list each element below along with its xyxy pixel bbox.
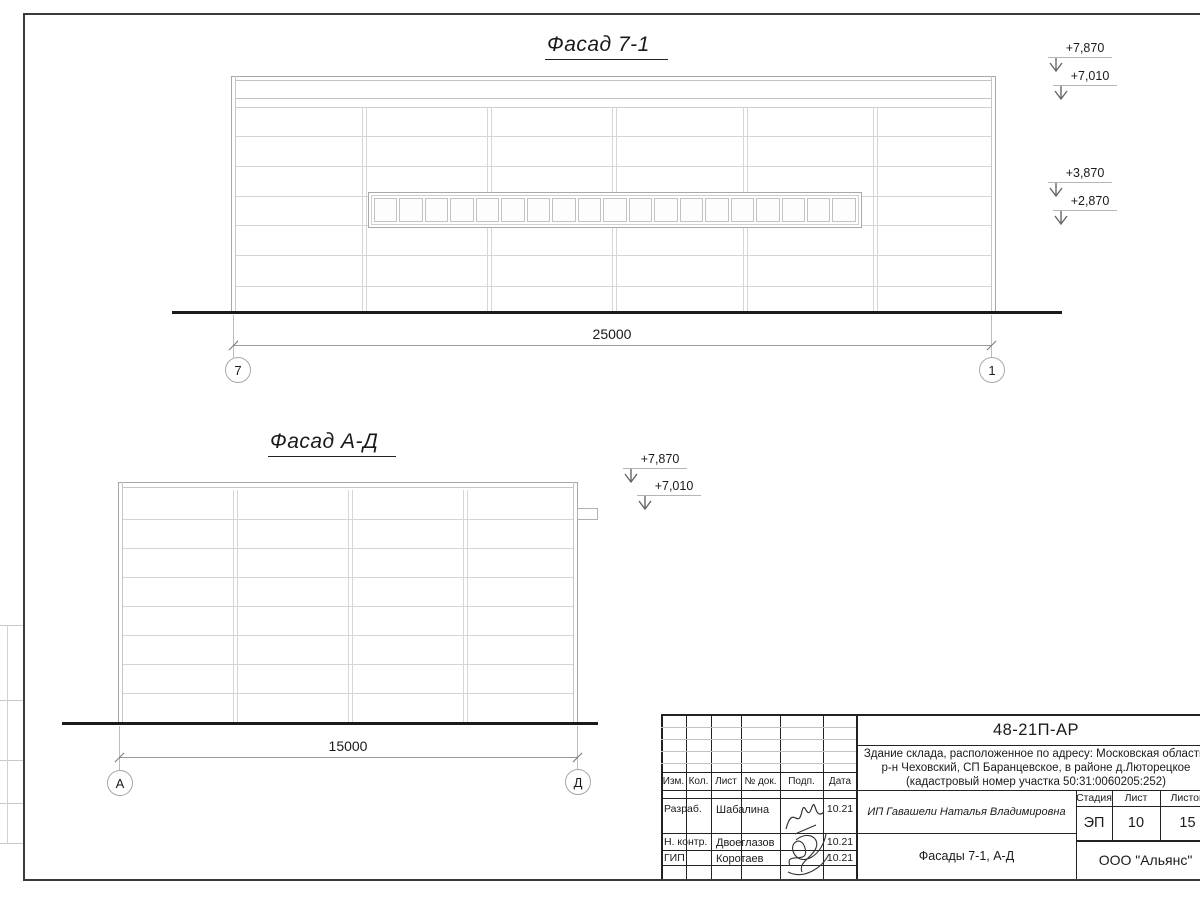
row-role: ГИП — [661, 850, 716, 865]
col-list: Лист — [711, 772, 741, 790]
list-value: 10 — [1112, 806, 1160, 840]
window-pane — [450, 198, 473, 222]
listov-value: 15 — [1160, 806, 1200, 840]
dimension-line — [233, 345, 992, 346]
facade-7-1-title: Фасад 7-1 — [545, 33, 668, 60]
col-doc: № док. — [741, 772, 780, 790]
window-pane — [629, 198, 652, 222]
elevation-value: +2,870 — [1053, 194, 1117, 211]
margin-line — [7, 625, 8, 843]
panel-joint — [348, 490, 353, 722]
extension-line — [991, 315, 992, 358]
dimension-15000: 15000 — [248, 738, 448, 754]
panel-joint — [362, 107, 367, 311]
ground-line — [172, 311, 1062, 314]
window-pane — [399, 198, 422, 222]
parapet-line — [118, 482, 578, 483]
dimension-25000: 25000 — [512, 326, 712, 342]
window-band — [368, 192, 862, 228]
elevation-mark: +7,010 — [1053, 69, 1117, 86]
parapet-line — [235, 80, 991, 81]
axis-bubble-1: 1 — [979, 357, 1005, 383]
project-description: Здание склада, расположенное по адресу: … — [857, 745, 1200, 790]
window-pane — [552, 198, 575, 222]
col-data: Дата — [823, 772, 857, 790]
window-pane — [807, 198, 830, 222]
elevation-mark: +7,870 — [623, 452, 687, 469]
stage-label: Стадия — [1076, 790, 1112, 806]
extension-line — [577, 726, 578, 770]
building-edge-column — [231, 76, 236, 312]
canopy-stub — [577, 508, 598, 520]
elevation-value: +7,870 — [1048, 41, 1112, 58]
extension-line — [233, 315, 234, 358]
company-name: ООО "Альянс" — [1076, 840, 1200, 879]
window-pane — [603, 198, 626, 222]
elevation-mark: +2,870 — [1053, 194, 1117, 211]
axis-bubble-a: А — [107, 770, 133, 796]
window-pane — [731, 198, 754, 222]
window-pane — [425, 198, 448, 222]
building-edge-column — [118, 482, 123, 722]
elevation-value: +7,010 — [637, 479, 701, 496]
client-name: ИП Гавашели Наталья Владимировна — [857, 790, 1076, 833]
frame-top — [23, 13, 1200, 15]
frame-left — [23, 13, 25, 881]
margin-line — [0, 843, 23, 844]
tb-faint-rule — [661, 751, 856, 752]
elevation-mark: +3,870 — [1048, 166, 1112, 183]
axis-label: Д — [574, 775, 583, 790]
window-pane — [527, 198, 550, 222]
sheet-title: Фасады 7-1, А-Д — [857, 833, 1076, 879]
row-role: Разраб. — [661, 801, 714, 817]
stage-value: ЭП — [1076, 806, 1112, 840]
row-name: Двоеглазов — [713, 835, 782, 851]
window-pane — [705, 198, 728, 222]
col-izm: Изм. — [661, 772, 686, 790]
elevation-mark: +7,870 — [1048, 41, 1112, 58]
dimension-line — [119, 757, 578, 758]
window-pane — [756, 198, 779, 222]
margin-line — [0, 700, 23, 701]
facade-a-d-title: Фасад А-Д — [268, 430, 396, 457]
margin-line — [0, 760, 23, 761]
frame-bottom — [23, 879, 1200, 881]
axis-bubble-7: 7 — [225, 357, 251, 383]
parapet-line — [231, 76, 995, 77]
listov-label: Листов — [1160, 790, 1200, 806]
doc-code: 48-21П-АР — [857, 715, 1200, 745]
window-pane — [654, 198, 677, 222]
window-band-frame — [371, 195, 859, 225]
drawing-sheet: Фасад 7-1 25000 7 1 +7,870 +7,010 +3,870… — [0, 0, 1200, 900]
panel-joint — [233, 490, 238, 722]
description-line: р-н Чеховский, СП Баранцевское, в районе… — [882, 761, 1191, 775]
description-line: Здание склада, расположенное по адресу: … — [864, 747, 1200, 761]
axis-label: 1 — [988, 363, 995, 378]
col-kol: Кол. — [686, 772, 711, 790]
window-pane — [374, 198, 397, 222]
tb-faint-rule — [661, 727, 856, 728]
axis-bubble-d: Д — [565, 769, 591, 795]
fascia-line — [235, 98, 991, 99]
window-pane — [680, 198, 703, 222]
margin-line — [0, 625, 23, 626]
description-line: (кадастровый номер участка 50:31:0060205… — [906, 775, 1166, 789]
row-name: Коротаев — [713, 851, 782, 866]
window-pane — [476, 198, 499, 222]
list-label: Лист — [1112, 790, 1160, 806]
row-role: Н. контр. — [661, 834, 716, 850]
extension-line — [119, 726, 120, 770]
row-name: Шабалина — [713, 802, 782, 818]
row-date: 10.21 — [823, 801, 857, 817]
axis-label: 7 — [234, 363, 241, 378]
elevation-mark: +7,010 — [637, 479, 701, 496]
window-pane — [782, 198, 805, 222]
ground-line — [62, 722, 598, 725]
window-pane — [578, 198, 601, 222]
margin-line — [0, 803, 23, 804]
panel-joint — [463, 490, 468, 722]
level-mark-icon — [637, 496, 653, 515]
signature-korotaev — [782, 828, 834, 876]
tb-faint-rule — [661, 763, 856, 764]
tb-rule — [661, 798, 857, 799]
window-pane — [832, 198, 855, 222]
tb-faint-rule — [661, 739, 856, 740]
elevation-value: +7,010 — [1053, 69, 1117, 86]
panel-joint — [873, 107, 878, 311]
parapet-line — [122, 487, 574, 488]
level-mark-icon — [1053, 86, 1069, 105]
building-edge-column — [991, 76, 996, 312]
elevation-value: +7,870 — [623, 452, 687, 469]
axis-label: А — [116, 776, 125, 791]
window-pane — [501, 198, 524, 222]
level-mark-icon — [1053, 211, 1069, 230]
col-podp: Подп. — [780, 772, 823, 790]
elevation-value: +3,870 — [1048, 166, 1112, 183]
